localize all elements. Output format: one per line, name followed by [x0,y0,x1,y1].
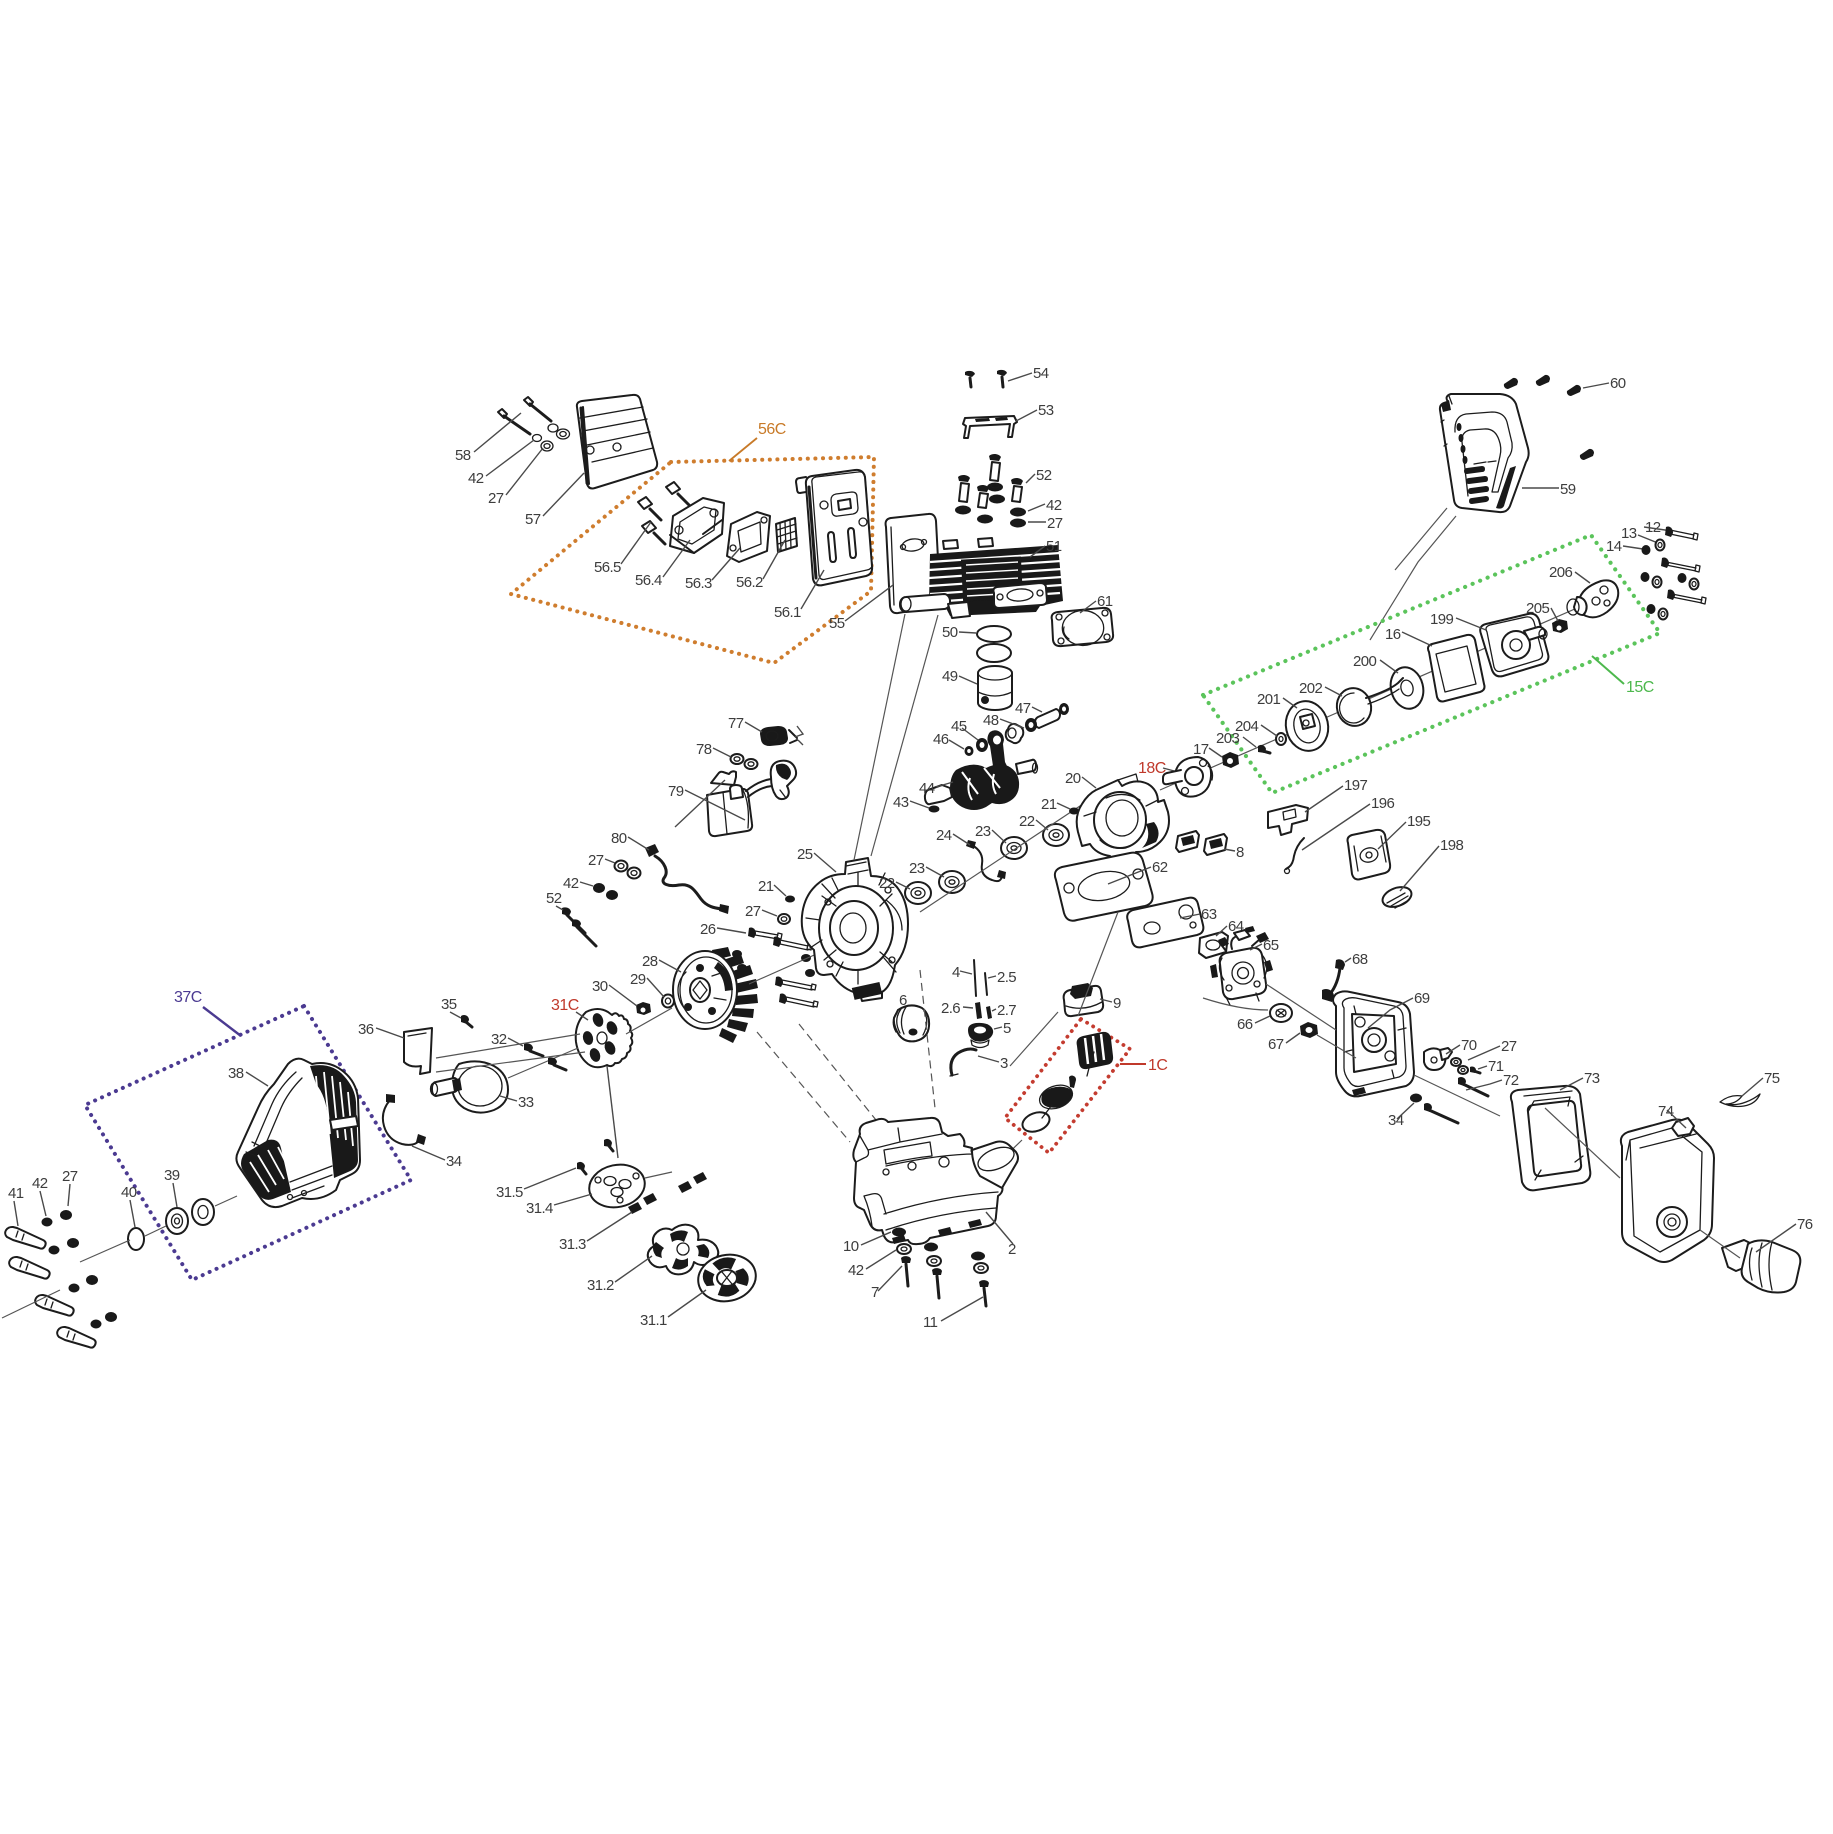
svg-text:70: 70 [1461,1037,1477,1054]
svg-text:66: 66 [1237,1016,1253,1033]
svg-text:202: 202 [1299,680,1322,697]
svg-text:195: 195 [1407,813,1430,830]
svg-text:9: 9 [1113,995,1121,1012]
svg-text:206: 206 [1549,564,1572,581]
svg-text:17: 17 [1193,741,1209,758]
svg-text:34: 34 [446,1153,462,1170]
svg-text:30: 30 [592,978,608,995]
svg-text:31C: 31C [551,997,579,1014]
svg-text:23: 23 [975,823,991,840]
svg-text:8: 8 [1236,844,1244,861]
svg-text:26: 26 [700,921,716,938]
svg-text:25: 25 [797,846,813,863]
svg-text:43: 43 [893,794,909,811]
svg-text:37C: 37C [174,989,202,1006]
svg-text:72: 72 [1503,1072,1519,1089]
svg-text:2.6: 2.6 [941,1000,960,1017]
svg-text:14: 14 [1606,538,1622,555]
svg-text:29: 29 [630,971,646,988]
svg-text:2.7: 2.7 [997,1002,1016,1019]
svg-text:42: 42 [1046,497,1062,514]
svg-text:24: 24 [936,827,952,844]
svg-text:22: 22 [1019,813,1035,830]
svg-text:6: 6 [899,992,907,1009]
svg-text:35: 35 [441,996,457,1013]
svg-text:23: 23 [909,860,925,877]
svg-text:62: 62 [1152,859,1168,876]
svg-text:1C: 1C [1148,1057,1167,1074]
svg-text:42: 42 [563,875,579,892]
svg-text:52: 52 [1036,467,1052,484]
svg-text:11: 11 [923,1314,938,1331]
svg-text:71: 71 [1488,1058,1504,1075]
svg-text:21: 21 [758,878,774,895]
svg-text:46: 46 [933,731,949,748]
svg-text:63: 63 [1201,906,1217,923]
svg-text:80: 80 [611,830,627,847]
svg-text:22: 22 [879,875,895,892]
svg-text:7: 7 [871,1284,879,1301]
svg-text:203: 203 [1216,730,1239,747]
svg-text:16: 16 [1385,626,1401,643]
svg-text:56.1: 56.1 [774,604,801,621]
svg-text:199: 199 [1430,611,1453,628]
svg-text:198: 198 [1440,837,1463,854]
svg-text:51: 51 [1046,538,1062,555]
svg-text:201: 201 [1257,691,1280,708]
svg-text:15C: 15C [1626,679,1654,696]
svg-text:53: 53 [1038,402,1054,419]
svg-text:20: 20 [1065,770,1081,787]
svg-text:56.3: 56.3 [685,575,712,592]
svg-text:31.5: 31.5 [496,1184,523,1201]
svg-text:42: 42 [468,470,484,487]
svg-text:2.5: 2.5 [997,969,1016,986]
svg-text:27: 27 [488,490,504,507]
svg-text:79: 79 [668,783,684,800]
svg-text:38: 38 [228,1065,244,1082]
svg-text:75: 75 [1764,1070,1780,1087]
svg-text:31.2: 31.2 [587,1277,614,1294]
svg-text:21: 21 [1041,796,1057,813]
svg-text:27: 27 [1501,1038,1517,1055]
svg-text:31.1: 31.1 [640,1312,667,1329]
svg-text:54: 54 [1033,365,1049,382]
svg-text:58: 58 [455,447,471,464]
svg-text:56.2: 56.2 [736,574,763,591]
svg-text:69: 69 [1414,990,1430,1007]
svg-text:42: 42 [848,1262,864,1279]
svg-text:32: 32 [491,1031,507,1048]
svg-text:197: 197 [1344,777,1367,794]
svg-text:48: 48 [983,712,999,729]
svg-text:65: 65 [1263,937,1279,954]
svg-text:56.5: 56.5 [594,559,621,576]
svg-text:31.4: 31.4 [526,1200,553,1217]
svg-text:39: 39 [164,1167,180,1184]
svg-text:73: 73 [1584,1070,1600,1087]
svg-text:74: 74 [1658,1103,1674,1120]
svg-text:56.4: 56.4 [635,572,662,589]
svg-text:5: 5 [1003,1020,1011,1037]
svg-text:200: 200 [1353,653,1376,670]
svg-text:40: 40 [121,1184,137,1201]
svg-text:76: 76 [1797,1216,1813,1233]
svg-text:60: 60 [1610,375,1626,392]
svg-text:52: 52 [546,890,562,907]
svg-text:45: 45 [951,718,967,735]
svg-text:59: 59 [1560,481,1576,498]
svg-text:196: 196 [1371,795,1394,812]
svg-text:67: 67 [1268,1036,1284,1053]
svg-text:78: 78 [696,741,712,758]
svg-text:28: 28 [642,953,658,970]
svg-text:61: 61 [1097,593,1113,610]
svg-text:27: 27 [588,852,604,869]
svg-text:68: 68 [1352,951,1368,968]
svg-text:44: 44 [919,780,935,797]
svg-text:27: 27 [1047,515,1063,532]
svg-text:47: 47 [1015,700,1031,717]
svg-text:18C: 18C [1138,760,1166,777]
svg-text:41: 41 [8,1185,24,1202]
svg-text:33: 33 [518,1094,534,1111]
svg-text:27: 27 [745,903,761,920]
svg-text:13: 13 [1621,525,1637,542]
svg-text:42: 42 [32,1175,48,1192]
svg-text:49: 49 [942,668,958,685]
svg-text:3: 3 [1000,1055,1008,1072]
svg-text:50: 50 [942,624,958,641]
svg-text:27: 27 [62,1168,78,1185]
svg-text:4: 4 [952,964,960,981]
svg-text:77: 77 [728,715,744,732]
svg-text:57: 57 [525,511,541,528]
svg-text:10: 10 [843,1238,859,1255]
svg-text:55: 55 [829,615,845,632]
svg-text:56C: 56C [758,421,786,438]
svg-text:31.3: 31.3 [559,1236,586,1253]
svg-text:36: 36 [358,1021,374,1038]
